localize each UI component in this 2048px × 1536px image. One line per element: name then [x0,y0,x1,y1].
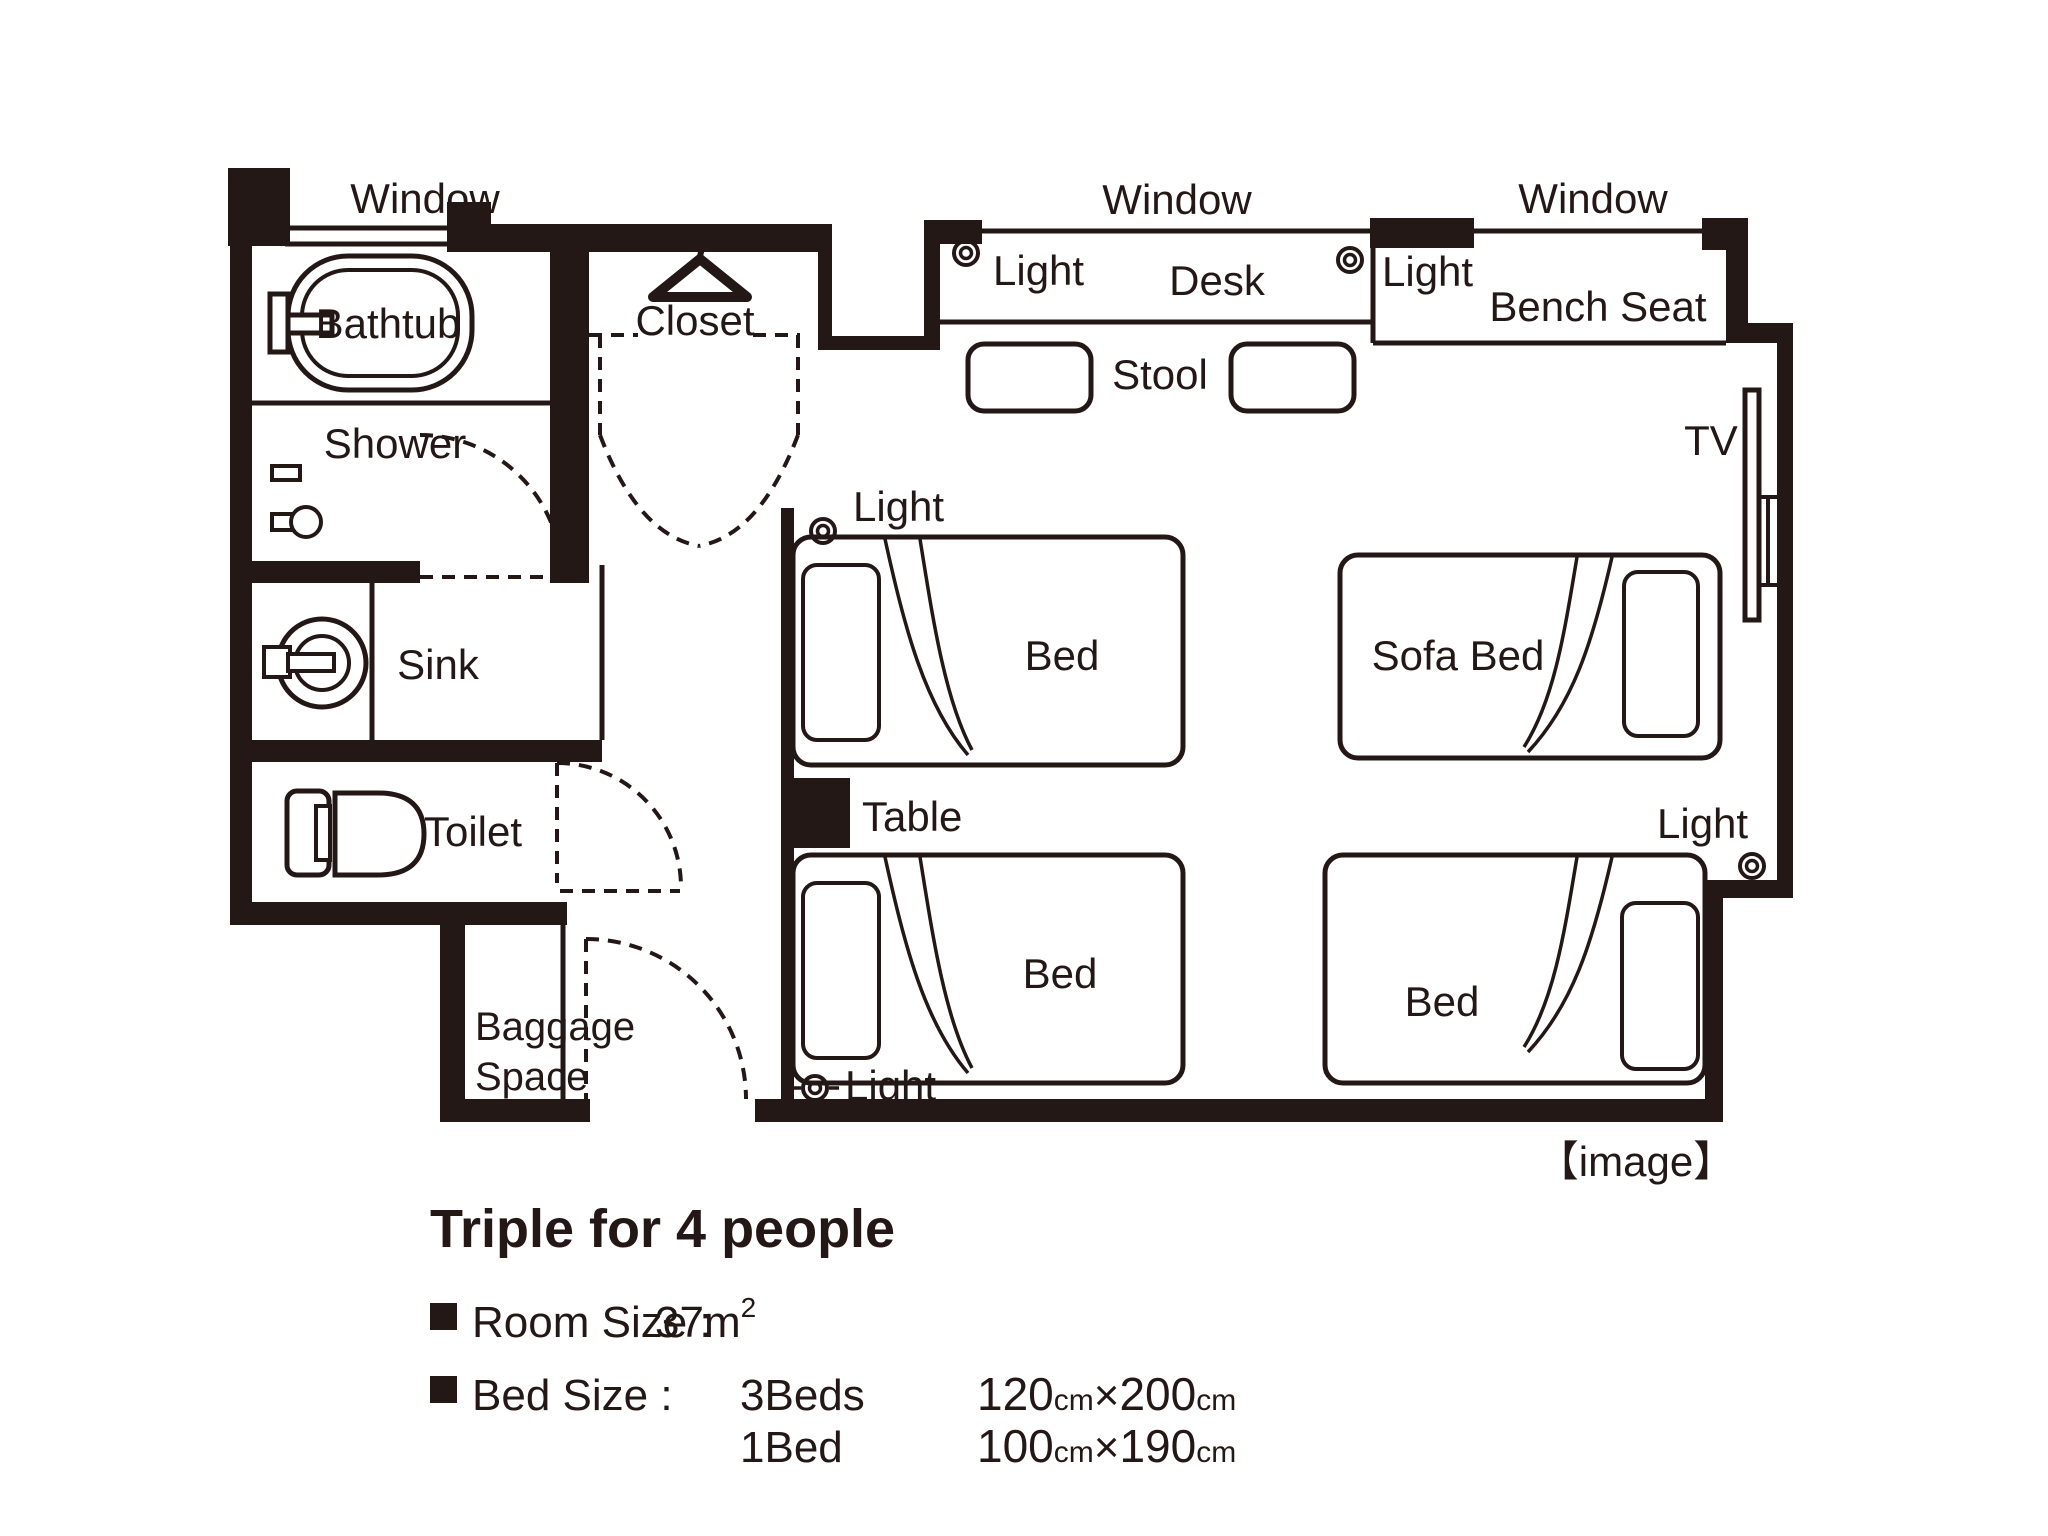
wall-segment [1370,218,1474,248]
bathtub-label: Bathtub [316,300,461,347]
bed-size-label: Bed Size : [472,1371,673,1420]
doors [420,335,800,1099]
wall-segment [818,336,940,350]
stool-2 [1231,344,1354,411]
details-block: Triple for 4 people Room Size : 37m2 Bed… [430,1199,1236,1472]
tv-label: TV [1684,417,1738,464]
light-label: Light [845,1062,936,1109]
light-icon [1740,854,1764,878]
wall-segment [1777,323,1793,898]
room-size-value: 37m2 [655,1292,756,1347]
wall-segment [1726,218,1748,340]
wall-segment [1705,880,1723,1122]
closet-label: Closet [635,297,754,344]
bullet-square [430,1303,457,1330]
light-icon [954,241,978,265]
bed-1 [793,537,1183,765]
light-label: Light [1382,248,1473,295]
light-label: Light [993,247,1084,294]
window-label: Window [1102,176,1252,223]
bed-label: Bed [1405,978,1480,1025]
hanger-body [653,259,747,297]
stool-1 [968,344,1091,411]
bed-size-dim-2: 100cm×190cm [977,1420,1236,1472]
pillow [803,565,879,740]
bed-size-count-2: 1Bed [740,1423,843,1472]
bullet-square [430,1376,457,1403]
light-label: Light [1657,800,1748,847]
wall-segment [230,740,602,762]
pillow [1622,903,1698,1069]
shower-icon [272,466,321,537]
toilet-tank-notch [316,806,330,860]
image-caption: 【image】 [1537,1138,1735,1185]
tv-panel [1745,390,1759,620]
stool-label: Stool [1112,351,1208,398]
shower-label: Shower [324,420,466,467]
sink-label: Sink [397,641,480,688]
wall-segment [230,168,252,925]
shower-head [291,507,321,537]
bed-3 [1325,855,1705,1083]
pillow [1624,572,1698,736]
light-icon [1338,248,1362,272]
sofa-bed-label: Sofa Bed [1372,632,1545,679]
bed-size-dim-1: 120cm×200cm [977,1368,1236,1420]
floor-plan-page: Window Window Window Light Light Light L… [0,0,2048,1536]
wall-segment [818,224,832,350]
bed-label: Bed [1023,950,1098,997]
bench-seat-label: Bench Seat [1489,283,1706,330]
wall-segment [230,561,420,583]
desk-label: Desk [1169,257,1266,304]
pillow [803,883,879,1058]
bed-size-count-1: 3Beds [740,1371,865,1420]
bathtub-faucet [270,294,288,352]
floor-plan-canvas: Window Window Window Light Light Light L… [0,0,2048,1536]
sink-faucet-arm [288,654,334,671]
table-label: Table [862,793,962,840]
wall-segment [447,224,832,252]
wall-segment [924,220,982,244]
baggage-label-line2: Space [475,1055,588,1099]
bed-label: Bed [1025,632,1100,679]
toilet-icon [287,791,424,875]
tv-icon [1745,390,1777,620]
toilet-label: Toilet [424,808,522,855]
toilet-bowl [335,793,424,875]
wall-segment [440,912,465,1122]
closet-door-arc [600,435,699,546]
window-label: Window [350,175,500,222]
baggage-label-line1: Baggage [475,1005,635,1049]
shower-valve [272,466,300,480]
toilet-door-arc [557,763,681,887]
sink-icon [264,619,366,707]
wall-segment [230,902,567,925]
table-icon [794,778,850,848]
light-label: Light [853,483,944,530]
wall-segment [550,224,589,583]
plan-title: Triple for 4 people [430,1199,895,1259]
window-label: Window [1518,175,1668,222]
bed-2 [793,855,1183,1083]
